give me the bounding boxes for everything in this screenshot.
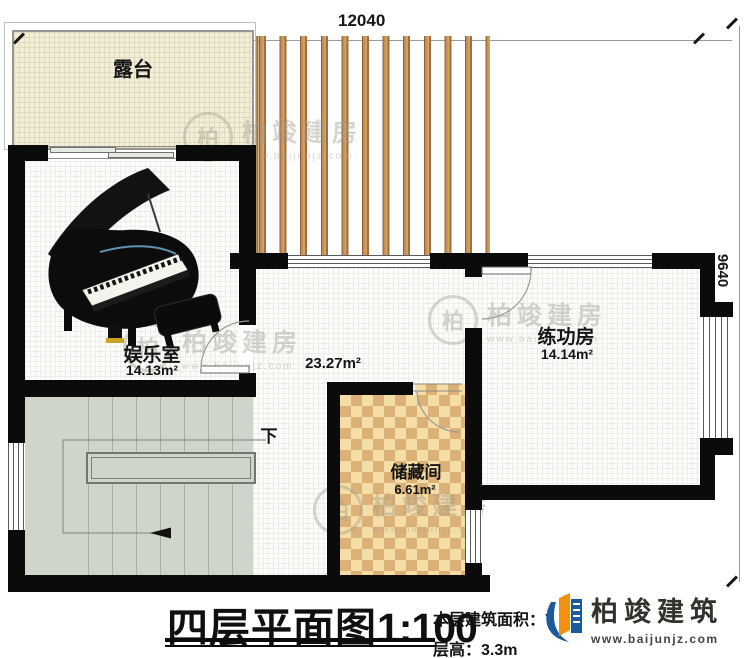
entertainment-room-area: 14.13m² — [126, 363, 178, 378]
staircase — [25, 397, 253, 575]
right-dimension-value: 9640 — [714, 254, 731, 287]
terrace-sliding-door — [48, 146, 176, 159]
storage-room-label: 储藏间 — [391, 464, 442, 482]
dimension-tick-icon — [726, 575, 738, 587]
wall — [465, 328, 482, 510]
company-name: 柏竣建筑 — [591, 590, 723, 629]
floor-height-line: 层高：3.3m — [433, 636, 517, 658]
hallway-area: 23.27m² — [305, 356, 361, 372]
window — [288, 255, 430, 268]
company-url: www.baijunjz.com — [591, 632, 723, 646]
window — [465, 510, 482, 563]
title-underline — [165, 638, 435, 642]
wall — [700, 438, 733, 455]
floor-area-label: 本层建筑面积： — [433, 612, 545, 629]
practice-room-label: 练功房 — [537, 328, 594, 348]
grand-piano-illustration — [36, 166, 234, 348]
wall — [465, 563, 482, 592]
top-dimension-value: 12040 — [338, 11, 385, 31]
wall — [230, 253, 288, 269]
company-logo-icon — [543, 590, 585, 644]
storage-room-area: 6.61m² — [394, 483, 435, 497]
wall — [700, 255, 715, 302]
practice-room-area: 14.14m² — [541, 347, 593, 362]
stairs-down-label: 下 — [261, 428, 278, 446]
stair-handrail — [86, 452, 256, 484]
wall — [239, 145, 256, 325]
storage-doorway-floor — [415, 384, 465, 395]
floor-height-value: 3.3m — [481, 642, 517, 658]
dimension-tick-icon — [726, 17, 738, 29]
terrace-label: 露台 — [113, 60, 153, 81]
window — [8, 443, 25, 530]
stair-treads — [88, 397, 253, 575]
bay-window — [703, 317, 730, 438]
wall — [8, 380, 256, 397]
right-dimension-line — [739, 26, 740, 582]
wall — [327, 382, 340, 575]
wall — [700, 455, 715, 485]
title-underline-thin — [165, 645, 435, 647]
wall — [482, 485, 715, 500]
company-logo: 柏竣建筑 www.baijunjz.com — [543, 590, 723, 646]
wall — [8, 145, 25, 443]
dimension-tick-icon — [693, 32, 705, 44]
wall — [8, 575, 490, 592]
floor-height-label: 层高： — [433, 642, 481, 658]
wall — [700, 302, 733, 317]
window — [528, 255, 652, 268]
floor-plan-page: 12040 9640 柏 柏竣建房 www.baijunjz.com 柏 柏竣建… — [0, 0, 750, 658]
wall — [465, 267, 482, 277]
